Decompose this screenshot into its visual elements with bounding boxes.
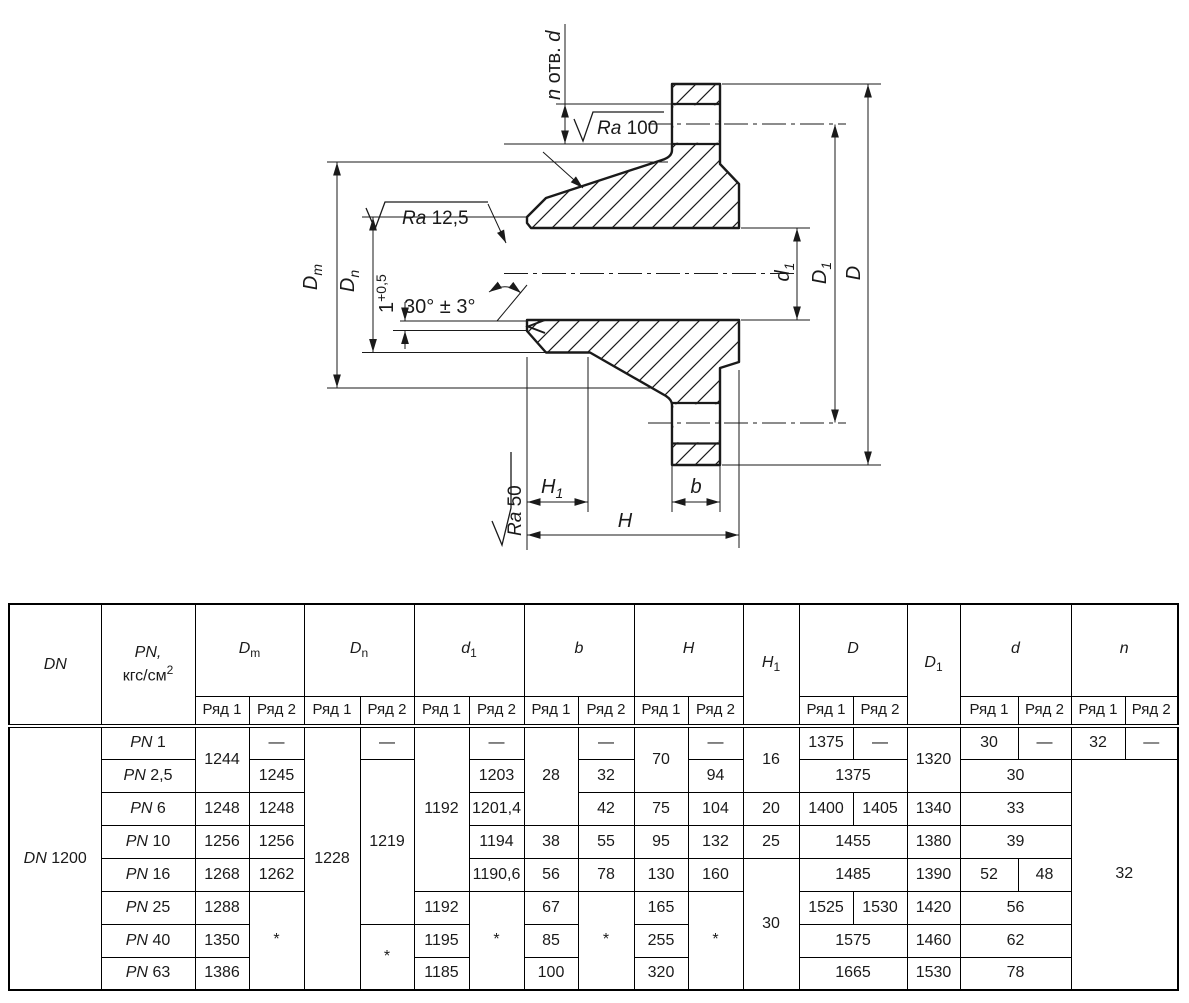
value-cell: 1248: [195, 792, 249, 825]
subheader-ryad: Ряд 1: [524, 697, 578, 727]
subheader-ryad: Ряд 2: [578, 697, 634, 727]
value-cell: 1245: [249, 759, 304, 792]
pn-cell: PN 2,5: [101, 759, 195, 792]
col-header-Dn: Dn: [304, 604, 414, 697]
value-cell: 1350: [195, 924, 249, 957]
value-cell: 1390: [907, 858, 960, 891]
value-cell: 94: [688, 759, 743, 792]
value-cell: 48: [1018, 858, 1071, 891]
label-Dn: Dn: [337, 270, 362, 292]
value-cell: 78: [960, 957, 1071, 990]
value-cell: 255: [634, 924, 688, 957]
value-cell: —: [853, 726, 907, 759]
value-cell: 56: [960, 891, 1071, 924]
col-header-dn: DN: [9, 604, 101, 726]
leader-line: [543, 152, 583, 188]
value-cell: 1256: [195, 825, 249, 858]
subheader-ryad: Ряд 1: [195, 697, 249, 727]
value-cell: 1185: [414, 957, 469, 990]
value-cell: 32: [1071, 726, 1125, 759]
value-cell: 56: [524, 858, 578, 891]
value-cell: 85: [524, 924, 578, 957]
dim-angle-arc: [489, 287, 521, 293]
subheader-ryad: Ряд 1: [634, 697, 688, 727]
value-cell: *: [469, 891, 524, 990]
label-ra100: Ra 100: [597, 118, 658, 139]
value-cell: 62: [960, 924, 1071, 957]
value-cell: 1530: [907, 957, 960, 990]
value-cell: 33: [960, 792, 1071, 825]
value-cell: 1195: [414, 924, 469, 957]
pn-cell: PN 25: [101, 891, 195, 924]
value-cell: —: [360, 726, 414, 759]
col-header-n: n: [1071, 604, 1178, 697]
value-cell: 1219: [360, 759, 414, 924]
value-cell: *: [578, 891, 634, 990]
value-cell: 38: [524, 825, 578, 858]
value-cell: 1525: [799, 891, 853, 924]
col-header-H: H: [634, 604, 743, 697]
value-cell: —: [249, 726, 304, 759]
value-cell: 1340: [907, 792, 960, 825]
value-cell: 104: [688, 792, 743, 825]
subheader-ryad: Ряд 1: [1071, 697, 1125, 727]
label-b: b: [690, 476, 701, 498]
value-cell: 1203: [469, 759, 524, 792]
col-header-Dm: Dm: [195, 604, 304, 697]
value-cell: —: [1018, 726, 1071, 759]
value-cell: 67: [524, 891, 578, 924]
flange-spec-table: DN PN,кгс/см2 Dm Dn d1 b H H1 D D1 d n Р…: [8, 603, 1179, 991]
value-cell: —: [469, 726, 524, 759]
value-cell: 1192: [414, 891, 469, 924]
value-cell: 1268: [195, 858, 249, 891]
value-cell: 1485: [799, 858, 907, 891]
value-cell: *: [249, 891, 304, 990]
value-cell: 1420: [907, 891, 960, 924]
subheader-ryad: Ряд 1: [414, 697, 469, 727]
subheader-ryad: Ряд 2: [1125, 697, 1178, 727]
drawing-labels: n отв. d Ra 100 Ra 12,5 Ra 50 30° ± 3° 1…: [300, 30, 865, 536]
value-cell: 30: [960, 726, 1018, 759]
subheader-ryad: Ряд 1: [799, 697, 853, 727]
value-cell: —: [1125, 726, 1178, 759]
value-cell: 160: [688, 858, 743, 891]
value-cell: 20: [743, 792, 799, 825]
table-row: DN 1200 PN 1 1244 — 1228 — 1192 — 28 — 7…: [9, 726, 1178, 759]
value-cell: 1201,4: [469, 792, 524, 825]
value-cell: 1405: [853, 792, 907, 825]
subheader-ryad: Ряд 2: [853, 697, 907, 727]
value-cell: 1256: [249, 825, 304, 858]
value-cell: 25: [743, 825, 799, 858]
label-Dm: Dm: [300, 264, 325, 290]
value-cell: 1262: [249, 858, 304, 891]
value-cell: 1665: [799, 957, 907, 990]
label-angle: 30° ± 3°: [404, 296, 475, 318]
flange-drawing: n отв. d Ra 100 Ra 12,5 Ra 50 30° ± 3° 1…: [0, 0, 1189, 598]
value-cell: 1228: [304, 726, 360, 990]
value-cell: *: [688, 891, 743, 990]
value-cell: 320: [634, 957, 688, 990]
value-cell: 70: [634, 726, 688, 792]
value-cell: 1455: [799, 825, 907, 858]
value-cell: —: [578, 726, 634, 759]
value-cell: 1380: [907, 825, 960, 858]
value-cell: 100: [524, 957, 578, 990]
value-cell: 1244: [195, 726, 249, 792]
flange-section: [527, 84, 739, 465]
table-row: PN 6 1248 1248 1201,4 42 75 104 20 1400 …: [9, 792, 1178, 825]
value-cell: 1375: [799, 759, 907, 792]
subheader-ryad: Ряд 1: [960, 697, 1018, 727]
pn-cell: PN 63: [101, 957, 195, 990]
value-cell: 130: [634, 858, 688, 891]
value-cell: 132: [688, 825, 743, 858]
value-cell: 1530: [853, 891, 907, 924]
col-header-D1: D1: [907, 604, 960, 726]
col-header-b: b: [524, 604, 634, 697]
value-cell: 1460: [907, 924, 960, 957]
label-ra50: Ra 50: [505, 485, 526, 536]
pn-cell: PN 6: [101, 792, 195, 825]
subheader-ryad: Ряд 1: [304, 697, 360, 727]
col-header-d: d: [960, 604, 1071, 697]
value-cell: 1248: [249, 792, 304, 825]
value-cell: 1575: [799, 924, 907, 957]
col-header-D: D: [799, 604, 907, 697]
value-cell: 28: [524, 726, 578, 825]
subheader-ryad: Ряд 2: [1018, 697, 1071, 727]
label-d1-small: d1: [772, 263, 797, 282]
value-cell: 32: [578, 759, 634, 792]
subheader-ryad: Ряд 2: [249, 697, 304, 727]
value-cell: 1400: [799, 792, 853, 825]
value-cell: 1386: [195, 957, 249, 990]
leader-line: [488, 204, 506, 243]
value-cell: 78: [578, 858, 634, 891]
label-D1: D1: [809, 262, 834, 284]
pn-cell: PN 1: [101, 726, 195, 759]
table-row: PN 25 1288 * 1192 * 67 * 165 * 1525 1530…: [9, 891, 1178, 924]
subheader-ryad: Ряд 2: [688, 697, 743, 727]
value-cell: 95: [634, 825, 688, 858]
extension-lines: [327, 24, 881, 550]
col-header-H1: H1: [743, 604, 799, 726]
label-depth: 1+0,5: [373, 274, 398, 313]
value-cell: 1375: [799, 726, 853, 759]
label-H1: H1: [541, 476, 563, 501]
value-cell: 42: [578, 792, 634, 825]
value-cell: 52: [960, 858, 1018, 891]
value-cell: 75: [634, 792, 688, 825]
label-n-holes: n отв. d: [543, 30, 565, 100]
value-cell: 30: [960, 759, 1071, 792]
spec-table-wrap: DN PN,кгс/см2 Dm Dn d1 b H H1 D D1 d n Р…: [8, 603, 1179, 991]
value-cell: *: [360, 924, 414, 990]
value-cell: 1192: [414, 726, 469, 891]
value-cell: 16: [743, 726, 799, 792]
value-cell: 39: [960, 825, 1071, 858]
table-row: PN 16 1268 1262 1190,6 56 78 130 160 30 …: [9, 858, 1178, 891]
value-cell: 30: [743, 858, 799, 990]
col-header-pn: PN,кгс/см2: [101, 604, 195, 726]
value-cell: 1190,6: [469, 858, 524, 891]
pn-cell: PN 10: [101, 825, 195, 858]
dn-cell: DN 1200: [9, 726, 101, 990]
label-H: H: [618, 510, 633, 532]
value-cell: 32: [1071, 759, 1178, 990]
value-cell: 1320: [907, 726, 960, 792]
value-cell: 1288: [195, 891, 249, 924]
subheader-ryad: Ряд 2: [360, 697, 414, 727]
value-cell: 165: [634, 891, 688, 924]
subheader-ryad: Ряд 2: [469, 697, 524, 727]
value-cell: 55: [578, 825, 634, 858]
pn-cell: PN 40: [101, 924, 195, 957]
pn-cell: PN 16: [101, 858, 195, 891]
page: n отв. d Ra 100 Ra 12,5 Ra 50 30° ± 3° 1…: [0, 0, 1189, 1003]
table-row: PN 10 1256 1256 1194 38 55 95 132 25 145…: [9, 825, 1178, 858]
value-cell: —: [688, 726, 743, 759]
label-D: D: [843, 266, 865, 280]
col-header-d1: d1: [414, 604, 524, 697]
label-ra125: Ra 12,5: [402, 208, 469, 229]
value-cell: 1194: [469, 825, 524, 858]
table-row: PN 2,5 1245 1219 1203 32 94 1375 30 32: [9, 759, 1178, 792]
